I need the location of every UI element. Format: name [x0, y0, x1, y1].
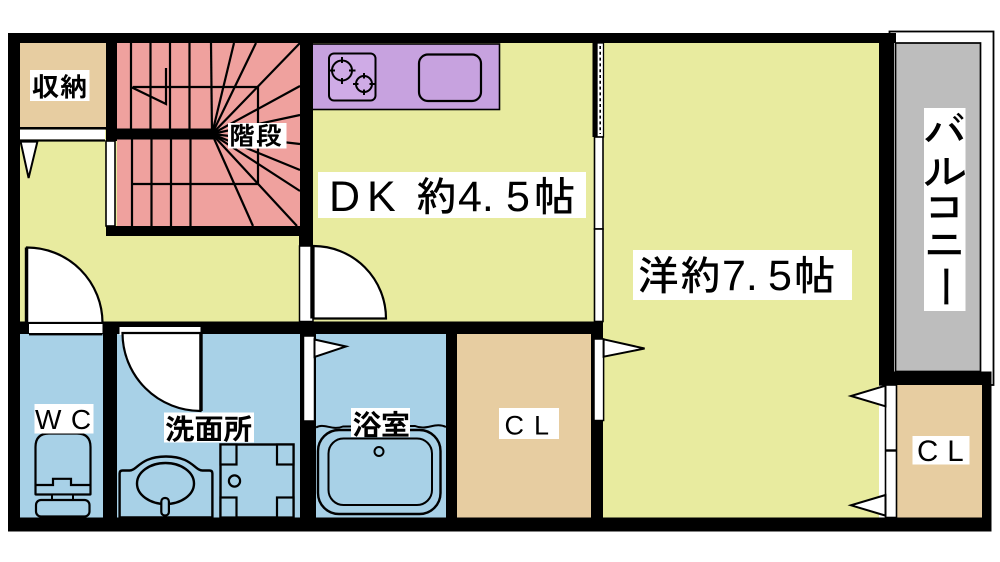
svg-text:5: 5	[506, 173, 530, 221]
svg-text:4.: 4.	[458, 173, 494, 221]
svg-text:CL: CL	[505, 411, 560, 441]
svg-text:DK: DK	[329, 173, 403, 221]
svg-text:WC: WC	[35, 404, 101, 435]
svg-text:CL: CL	[917, 435, 973, 468]
svg-text:5: 5	[768, 252, 792, 300]
svg-text:7.: 7.	[722, 252, 758, 300]
